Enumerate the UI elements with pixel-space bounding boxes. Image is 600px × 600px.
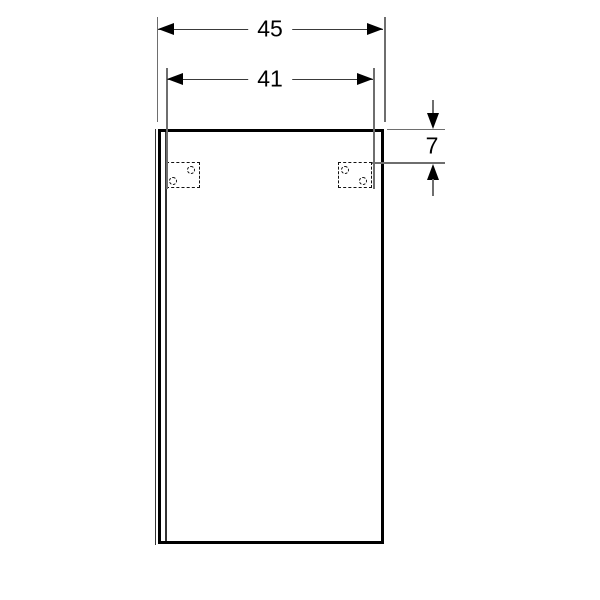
dim-7-line-lower	[432, 179, 434, 196]
mounting-plate-left	[166, 162, 200, 188]
screw-hole-icon	[341, 166, 349, 174]
dim-41-label: 41	[248, 66, 292, 93]
arrowhead-up-icon	[427, 164, 439, 180]
arrowhead-left-icon	[158, 23, 174, 35]
dim-41-extension-line-left	[166, 68, 168, 189]
arrowhead-right-icon	[367, 23, 383, 35]
arrowhead-down-icon	[427, 113, 439, 129]
dim-45-extension-line-right	[384, 17, 386, 122]
arrowhead-right-icon	[357, 73, 373, 85]
door-edge-line	[165, 132, 167, 541]
dim-41-extension-line-right	[373, 68, 375, 189]
dim-7-label: 7	[422, 134, 443, 157]
cabinet-body-outline	[158, 129, 384, 544]
arrowhead-left-icon	[167, 73, 183, 85]
mounting-plate-right	[338, 162, 372, 188]
screw-hole-icon	[187, 166, 195, 174]
screw-hole-icon	[169, 177, 177, 185]
cabinet-side-edge-line	[155, 129, 157, 545]
technical-dimension-drawing: 45 41 7	[0, 0, 600, 600]
dim-7-line-upper	[432, 100, 434, 114]
screw-hole-icon	[359, 177, 367, 185]
dim-45-label: 45	[248, 16, 292, 43]
